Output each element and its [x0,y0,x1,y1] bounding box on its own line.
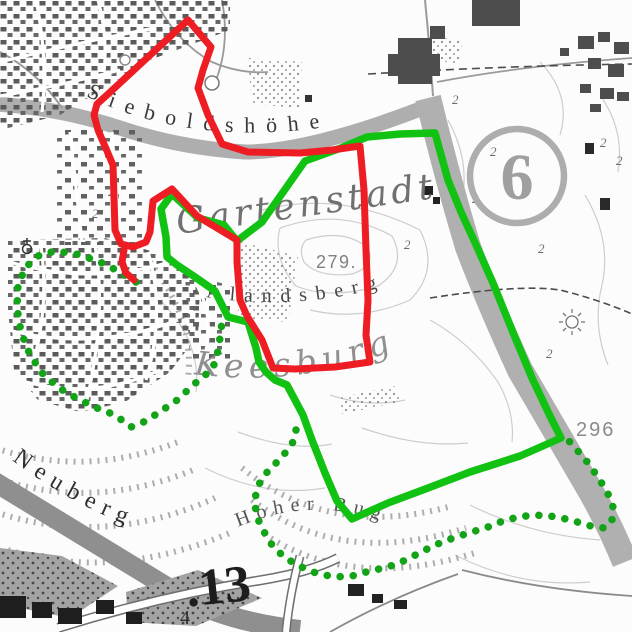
topo-map-canvas: 2 2 2 2 2 2 2 2 2 2 Sieboldshöhe Gartens… [0,0,632,632]
tree-symbol: 2 [546,346,553,361]
tree-symbol: 2 [616,153,623,168]
spot-height-296: 296 [576,419,615,441]
circle-number-6: 6 [501,141,534,214]
topo-map: 2 2 2 2 2 2 2 2 2 2 Sieboldshöhe Gartens… [0,0,632,632]
number-4: 4 [180,607,190,629]
tree-symbol: 2 [600,135,607,150]
tree-symbol: 2 [538,241,545,256]
tree-symbol: 2 [490,144,497,159]
small-circle-icon [120,55,130,65]
tree-symbol: 2 [452,92,459,107]
spot-height-279: 279. [316,252,357,272]
reservoir-circle-icon [205,76,219,90]
tree-symbol: 2 [404,237,411,252]
route-number-13: .13 [183,555,254,618]
tree-symbol: 2 [92,206,99,221]
